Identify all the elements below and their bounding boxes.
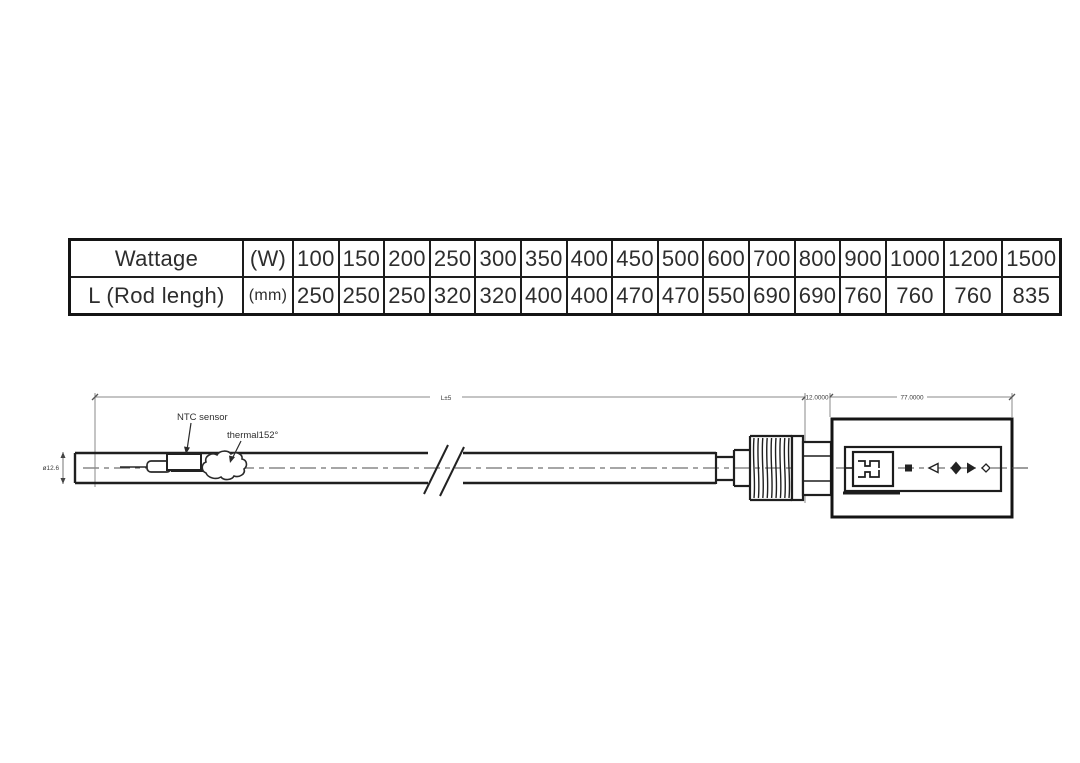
thermal-fuse-cloud: [202, 451, 246, 479]
diameter-dimension: ø12.6: [43, 452, 66, 484]
ntc-sensor-assembly: [120, 454, 205, 472]
dim-hex-length-label: 12.0000: [805, 395, 829, 402]
square-symbol: [905, 465, 912, 472]
ntc-callout: NTC sensor: [177, 412, 228, 454]
spec-sheet-page: Wattage (W) 1001502002503003504004505006…: [0, 0, 1080, 763]
flange: [792, 436, 803, 500]
break-symbol: [424, 445, 464, 496]
diameter-label: ø12.6: [43, 465, 60, 472]
dim-housing-length-label: 77.0000: [900, 395, 924, 402]
connector-symbol: [845, 452, 893, 486]
technical-drawing: L±5 12.0000 77.0000 ø12.6: [0, 0, 1080, 763]
hex-nut: [803, 442, 831, 495]
ntc-label: NTC sensor: [177, 412, 228, 423]
thread-crests: [753, 438, 789, 498]
thermal-label: thermal152°: [227, 430, 279, 441]
dim-total-length-label: L±5: [441, 395, 452, 402]
